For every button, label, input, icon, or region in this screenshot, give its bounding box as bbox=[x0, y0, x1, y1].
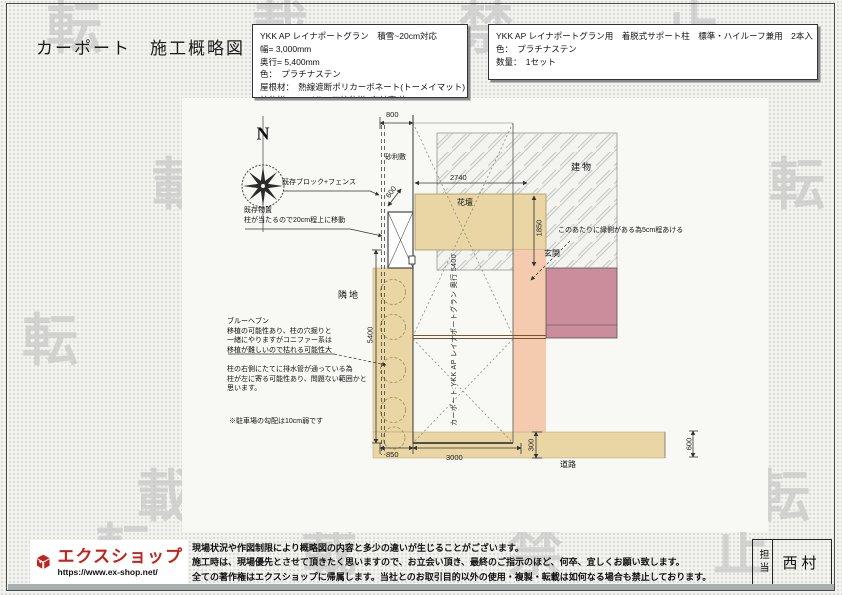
note-pipe-3: 思います。 bbox=[227, 383, 261, 393]
label-entrance: 玄関 bbox=[544, 248, 560, 259]
product-spec-line: 幅= 3,000mm bbox=[260, 43, 460, 56]
person-in-charge-label: 担当 bbox=[752, 539, 773, 585]
dim-2740: 2740 bbox=[450, 173, 467, 182]
label-gravel: 砂利敷 bbox=[385, 152, 406, 162]
product-spec-line: 屋根材： 熱線遮断ポリカーボネート(トーメイマット) bbox=[260, 81, 460, 94]
dim-850: 850 bbox=[386, 450, 399, 459]
label-building: 建物 bbox=[571, 160, 593, 173]
note-fence: 既存ブロック+フェンス bbox=[282, 177, 356, 187]
product-spec-box: YKK AP レイナポートグラン 積雪~20cm対応 幅= 3,000mm 奥行… bbox=[252, 24, 468, 98]
page-title: カーポート 施工概略図 bbox=[36, 34, 245, 59]
note-tree-1: ブルーヘブン bbox=[227, 316, 269, 326]
disclaimer-line: 全ての著作権はエクスショップに帰属します。当社とのお取引目的以外の使用・複製・転… bbox=[192, 570, 711, 584]
note-tree-4: 移植が難しいので枯れる可能性大 bbox=[227, 345, 332, 355]
footer-disclaimer: 現場状況や作図制限により概略図の内容と多少の違いが生じることがございます。 施工… bbox=[192, 541, 711, 584]
planting-strip bbox=[373, 268, 413, 432]
note-tree-2: 移植の可能性あり、柱の穴掘りと bbox=[227, 326, 332, 336]
document-page: 転載禁止転載禁止転載禁止転載禁止転載禁止転載禁止転載禁止転載禁止転載禁止転載禁止… bbox=[0, 0, 842, 595]
dim-5400: 5400 bbox=[366, 327, 375, 344]
note-pipe-2: 柱が左に寄る可能性あり、問題ない範囲かと bbox=[227, 374, 367, 384]
entrance-porch bbox=[546, 268, 617, 338]
product-spec-line: 色： プラチナステン bbox=[260, 68, 460, 81]
storage-shed bbox=[388, 212, 415, 268]
exshop-logo-icon bbox=[35, 545, 52, 579]
approach-strip bbox=[513, 250, 546, 432]
bottom-gray-bar bbox=[8, 584, 834, 590]
dim-3000: 3000 bbox=[446, 453, 463, 462]
dim-300: 300 bbox=[527, 439, 536, 452]
site-plan-canvas: N 砂利敷 800 建物 2740 花壇 1850 玄関 このあたりに縁側がある… bbox=[182, 98, 768, 532]
compass-north-label: N bbox=[257, 124, 270, 145]
label-carport-vertical: カーポート:YKK AP レイナポートグラン 奥行 5400 bbox=[449, 242, 459, 438]
brand-url[interactable]: https://www.ex-shop.net/ bbox=[58, 567, 184, 577]
person-in-charge-name: 西村 bbox=[772, 539, 832, 585]
road-side-band bbox=[373, 432, 665, 458]
disclaimer-line: 施工時は、現場優先とさせて頂きたく思いますので、お立会い頂き、最終のご指示のほど… bbox=[192, 555, 711, 569]
brand-name: エクスショップ bbox=[58, 548, 184, 565]
exshop-logo: エクスショップ https://www.ex-shop.net/ bbox=[30, 540, 188, 584]
support-spec-line: 色： プラチナステン bbox=[496, 43, 810, 56]
support-spec-line: YKK AP レイナポートグラン用 着脱式サポート柱 標準・ハイルーフ兼用 2本… bbox=[496, 30, 810, 43]
product-spec-line: 柱仕様： ハイルーフ柱仕様 (有効高 約2,350mm) bbox=[260, 94, 460, 98]
note-tree-3: 一緒にやりますがコニファー系は bbox=[227, 335, 332, 345]
note-shed-2: 柱が当たるので20cm程上に移動 bbox=[244, 215, 345, 225]
support-post-spec-box: YKK AP レイナポートグラン用 着脱式サポート柱 標準・ハイルーフ兼用 2本… bbox=[488, 24, 818, 80]
dim-road-600: 600 bbox=[685, 438, 694, 451]
site-plan-drawing bbox=[182, 98, 768, 532]
dim-1850: 1850 bbox=[535, 220, 544, 237]
note-shed-1: 既存物置 bbox=[244, 205, 272, 215]
label-neighbor: 隣地 bbox=[338, 288, 360, 301]
flowerbed-area bbox=[415, 194, 546, 250]
label-flowerbed: 花壇 bbox=[457, 197, 473, 208]
note-pipe-1: 柱の右側にたてに排水管が通っている為 bbox=[227, 364, 353, 374]
note-slope: ※駐車場の勾配は10cm弱です bbox=[229, 416, 323, 426]
disclaimer-line: 現場状況や作図制限により概略図の内容と多少の違いが生じることがございます。 bbox=[192, 541, 711, 555]
support-spec-line: 数量： 1セット bbox=[496, 56, 810, 69]
label-road: 道路 bbox=[560, 459, 576, 470]
product-spec-line: 奥行= 5,400mm bbox=[260, 56, 460, 69]
note-veranda: このあたりに縁側がある為5cm程あける bbox=[558, 225, 683, 235]
dim-top-800: 800 bbox=[386, 110, 399, 119]
product-spec-line: YKK AP レイナポートグラン 積雪~20cm対応 bbox=[260, 30, 460, 43]
